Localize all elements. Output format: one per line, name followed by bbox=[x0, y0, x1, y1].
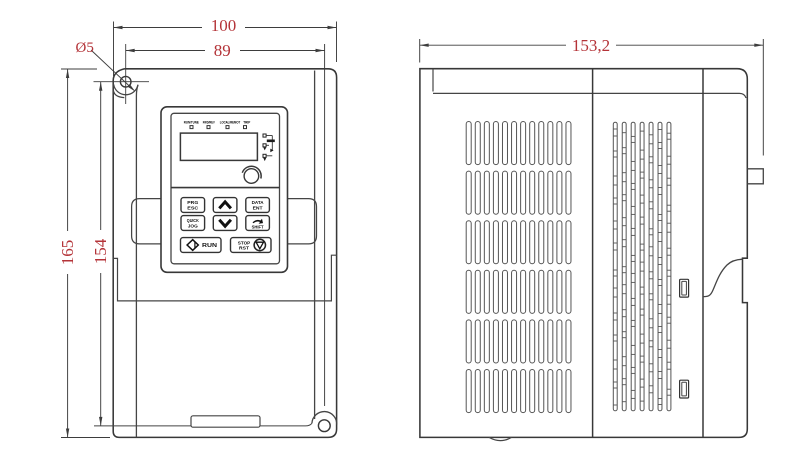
svg-text:TRIP: TRIP bbox=[243, 120, 250, 125]
svg-text:JOG: JOG bbox=[188, 223, 199, 228]
svg-text:ENT: ENT bbox=[253, 205, 263, 210]
svg-text:FWD/REV: FWD/REV bbox=[203, 120, 215, 125]
svg-text:DATA: DATA bbox=[252, 200, 265, 205]
svg-text:RST: RST bbox=[239, 246, 249, 251]
svg-text:100: 100 bbox=[211, 16, 237, 35]
svg-text:89: 89 bbox=[214, 41, 231, 60]
svg-text:RUN/TUNE: RUN/TUNE bbox=[184, 120, 199, 125]
svg-text:RUN: RUN bbox=[202, 243, 217, 249]
svg-text:LOCAL/REMOT: LOCAL/REMOT bbox=[220, 120, 241, 125]
svg-text:SHIFT: SHIFT bbox=[252, 225, 264, 230]
svg-text:154: 154 bbox=[91, 238, 110, 264]
svg-text:153,2: 153,2 bbox=[572, 36, 610, 55]
svg-text:ESC: ESC bbox=[187, 205, 199, 210]
svg-text:Ø5: Ø5 bbox=[76, 40, 94, 56]
svg-text:165: 165 bbox=[58, 240, 77, 266]
svg-text:QUICK: QUICK bbox=[187, 218, 200, 223]
svg-text:PRG: PRG bbox=[187, 200, 199, 205]
